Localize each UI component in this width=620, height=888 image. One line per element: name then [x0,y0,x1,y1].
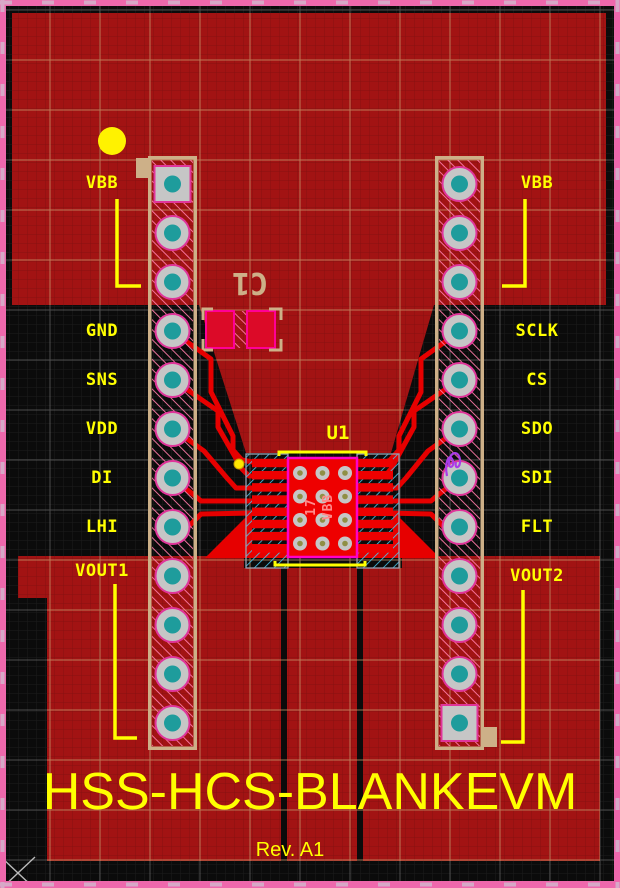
u1-pad-number: 17 [304,479,321,535]
header-pad-5[interactable] [443,363,477,397]
u1-pad-l8[interactable] [252,544,288,553]
pad-drill-hole [451,323,468,340]
header-pad-9[interactable] [156,559,190,593]
pin-label-vout2[interactable]: VOUT2 [487,566,587,586]
header-pad-5[interactable] [156,363,190,397]
u1-pad-r4[interactable] [357,495,393,504]
pad-drill-hole [451,617,468,634]
header-pad-2[interactable] [156,216,190,250]
pad-drill-hole [451,470,468,487]
pcb-canvas[interactable]: VBB GND SNS VDD DI LHI VOUT1 VBB SCLK CS… [0,0,620,888]
pin-label-sclk[interactable]: SCLK [487,321,587,341]
header-pad-8[interactable] [156,510,190,544]
header-pad-10[interactable] [156,608,190,642]
pad-drill-hole [164,617,181,634]
header-pad-11[interactable] [443,657,477,691]
u1-pad-l5[interactable] [252,508,288,517]
u1-pad-r3[interactable] [357,483,393,492]
u1-pad-net: VBB [321,479,338,535]
pad-drill-hole [164,519,181,536]
u1-pad-l1[interactable] [252,459,288,468]
pad-drill-hole [451,176,468,193]
pad-drill-hole [451,568,468,585]
board-title-silkscreen[interactable]: HSS-HCS-BLANKEVM [0,762,620,822]
u1-pad-l3[interactable] [252,483,288,492]
pad-drill-hole [451,715,468,732]
header-pad-6[interactable] [156,412,190,446]
header-pad-2[interactable] [443,216,477,250]
u1-pin1-marker [234,459,244,469]
header-pad-9[interactable] [443,559,477,593]
pad-drill-hole [164,715,181,732]
thermal-via[interactable] [293,466,307,480]
pad-drill-hole [451,225,468,242]
c1-pad-1[interactable] [206,311,234,348]
pad-drill-hole [451,421,468,438]
header-pad-1[interactable] [155,166,191,202]
pad-drill-hole [451,274,468,291]
u1-pad-r8[interactable] [357,544,393,553]
header-pad-4[interactable] [156,314,190,348]
pad-drill-hole [451,519,468,536]
pin-label-flt[interactable]: FLT [487,517,587,537]
pad-drill-hole [164,470,181,487]
pin-label-gnd[interactable]: GND [52,321,152,341]
fiducial-dot [98,127,126,155]
header-pad-3[interactable] [156,265,190,299]
header-pad-8[interactable] [443,510,477,544]
header-pad-12[interactable] [156,706,190,740]
thermal-via[interactable] [338,466,352,480]
c1-pad-2[interactable] [247,311,275,348]
pad-drill-hole [451,666,468,683]
u1-pad-l2[interactable] [252,471,288,480]
thermal-via[interactable] [338,537,352,551]
header-pad-11[interactable] [156,657,190,691]
thermal-via[interactable] [316,466,330,480]
u1-pad-l4[interactable] [252,495,288,504]
u1-pad-r6[interactable] [357,520,393,529]
header-pad-4[interactable] [443,314,477,348]
pad-drill-hole [164,176,181,193]
u1-pad-r5[interactable] [357,508,393,517]
header-pad-3[interactable] [443,265,477,299]
header-tab [484,727,497,747]
c1-body-hatch [234,311,247,348]
u1-refdes-label[interactable]: U1 [308,422,368,444]
pin-label-sns[interactable]: SNS [52,370,152,390]
pad-drill-hole [164,568,181,585]
u1-pad-l6[interactable] [252,520,288,529]
u1-pad-r1[interactable] [357,459,393,468]
board-revision-silkscreen[interactable]: Rev. A1 [0,839,600,862]
pad-drill-hole [164,323,181,340]
capacitor-c1[interactable] [203,309,281,350]
header-pad-6[interactable] [443,412,477,446]
pin-label-vbb-left[interactable]: VBB [52,173,152,193]
c1-refdes-label[interactable]: C1 [208,258,292,300]
header-pad-12[interactable] [442,705,478,741]
u1-pad-r7[interactable] [357,532,393,541]
pad-drill-hole [164,225,181,242]
pin-label-cs[interactable]: CS [487,370,587,390]
pad-drill-hole [451,372,468,389]
pin-label-vbb-right[interactable]: VBB [487,173,587,193]
pad-drill-hole [164,421,181,438]
header-pad-7[interactable] [156,461,190,495]
pin-label-lhi[interactable]: LHI [52,517,152,537]
header-pad-10[interactable] [443,608,477,642]
pin-label-vdd[interactable]: VDD [52,419,152,439]
u1-pad-l7[interactable] [252,532,288,541]
thermal-via[interactable] [316,537,330,551]
pad-drill-hole [164,372,181,389]
pin-label-di[interactable]: DI [52,468,152,488]
pin-label-sdi[interactable]: SDI [487,468,587,488]
pcb-layout-svg [0,0,620,888]
pin-label-sdo[interactable]: SDO [487,419,587,439]
pad-drill-hole [164,274,181,291]
pin-label-vout1[interactable]: VOUT1 [52,561,152,581]
thermal-via[interactable] [293,537,307,551]
u1-pad-net-label: 17VBB [304,479,342,535]
u1-pad-r2[interactable] [357,471,393,480]
pad-drill-hole [164,666,181,683]
header-pad-1[interactable] [443,167,477,201]
